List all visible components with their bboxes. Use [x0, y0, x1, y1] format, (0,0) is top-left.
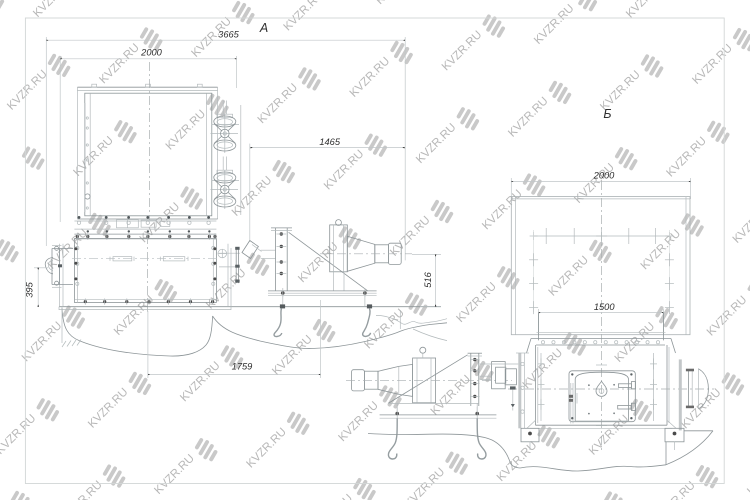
svg-text:3665: 3665: [218, 30, 240, 40]
svg-text:395: 395: [25, 281, 35, 297]
svg-text:2000: 2000: [140, 48, 163, 58]
svg-text:Б: Б: [603, 107, 611, 121]
svg-text:А: А: [259, 21, 268, 35]
svg-text:516: 516: [423, 271, 433, 287]
svg-text:1759: 1759: [232, 362, 253, 372]
svg-text:1465: 1465: [319, 137, 341, 147]
svg-text:2000: 2000: [593, 171, 616, 181]
svg-text:1500: 1500: [594, 302, 616, 312]
